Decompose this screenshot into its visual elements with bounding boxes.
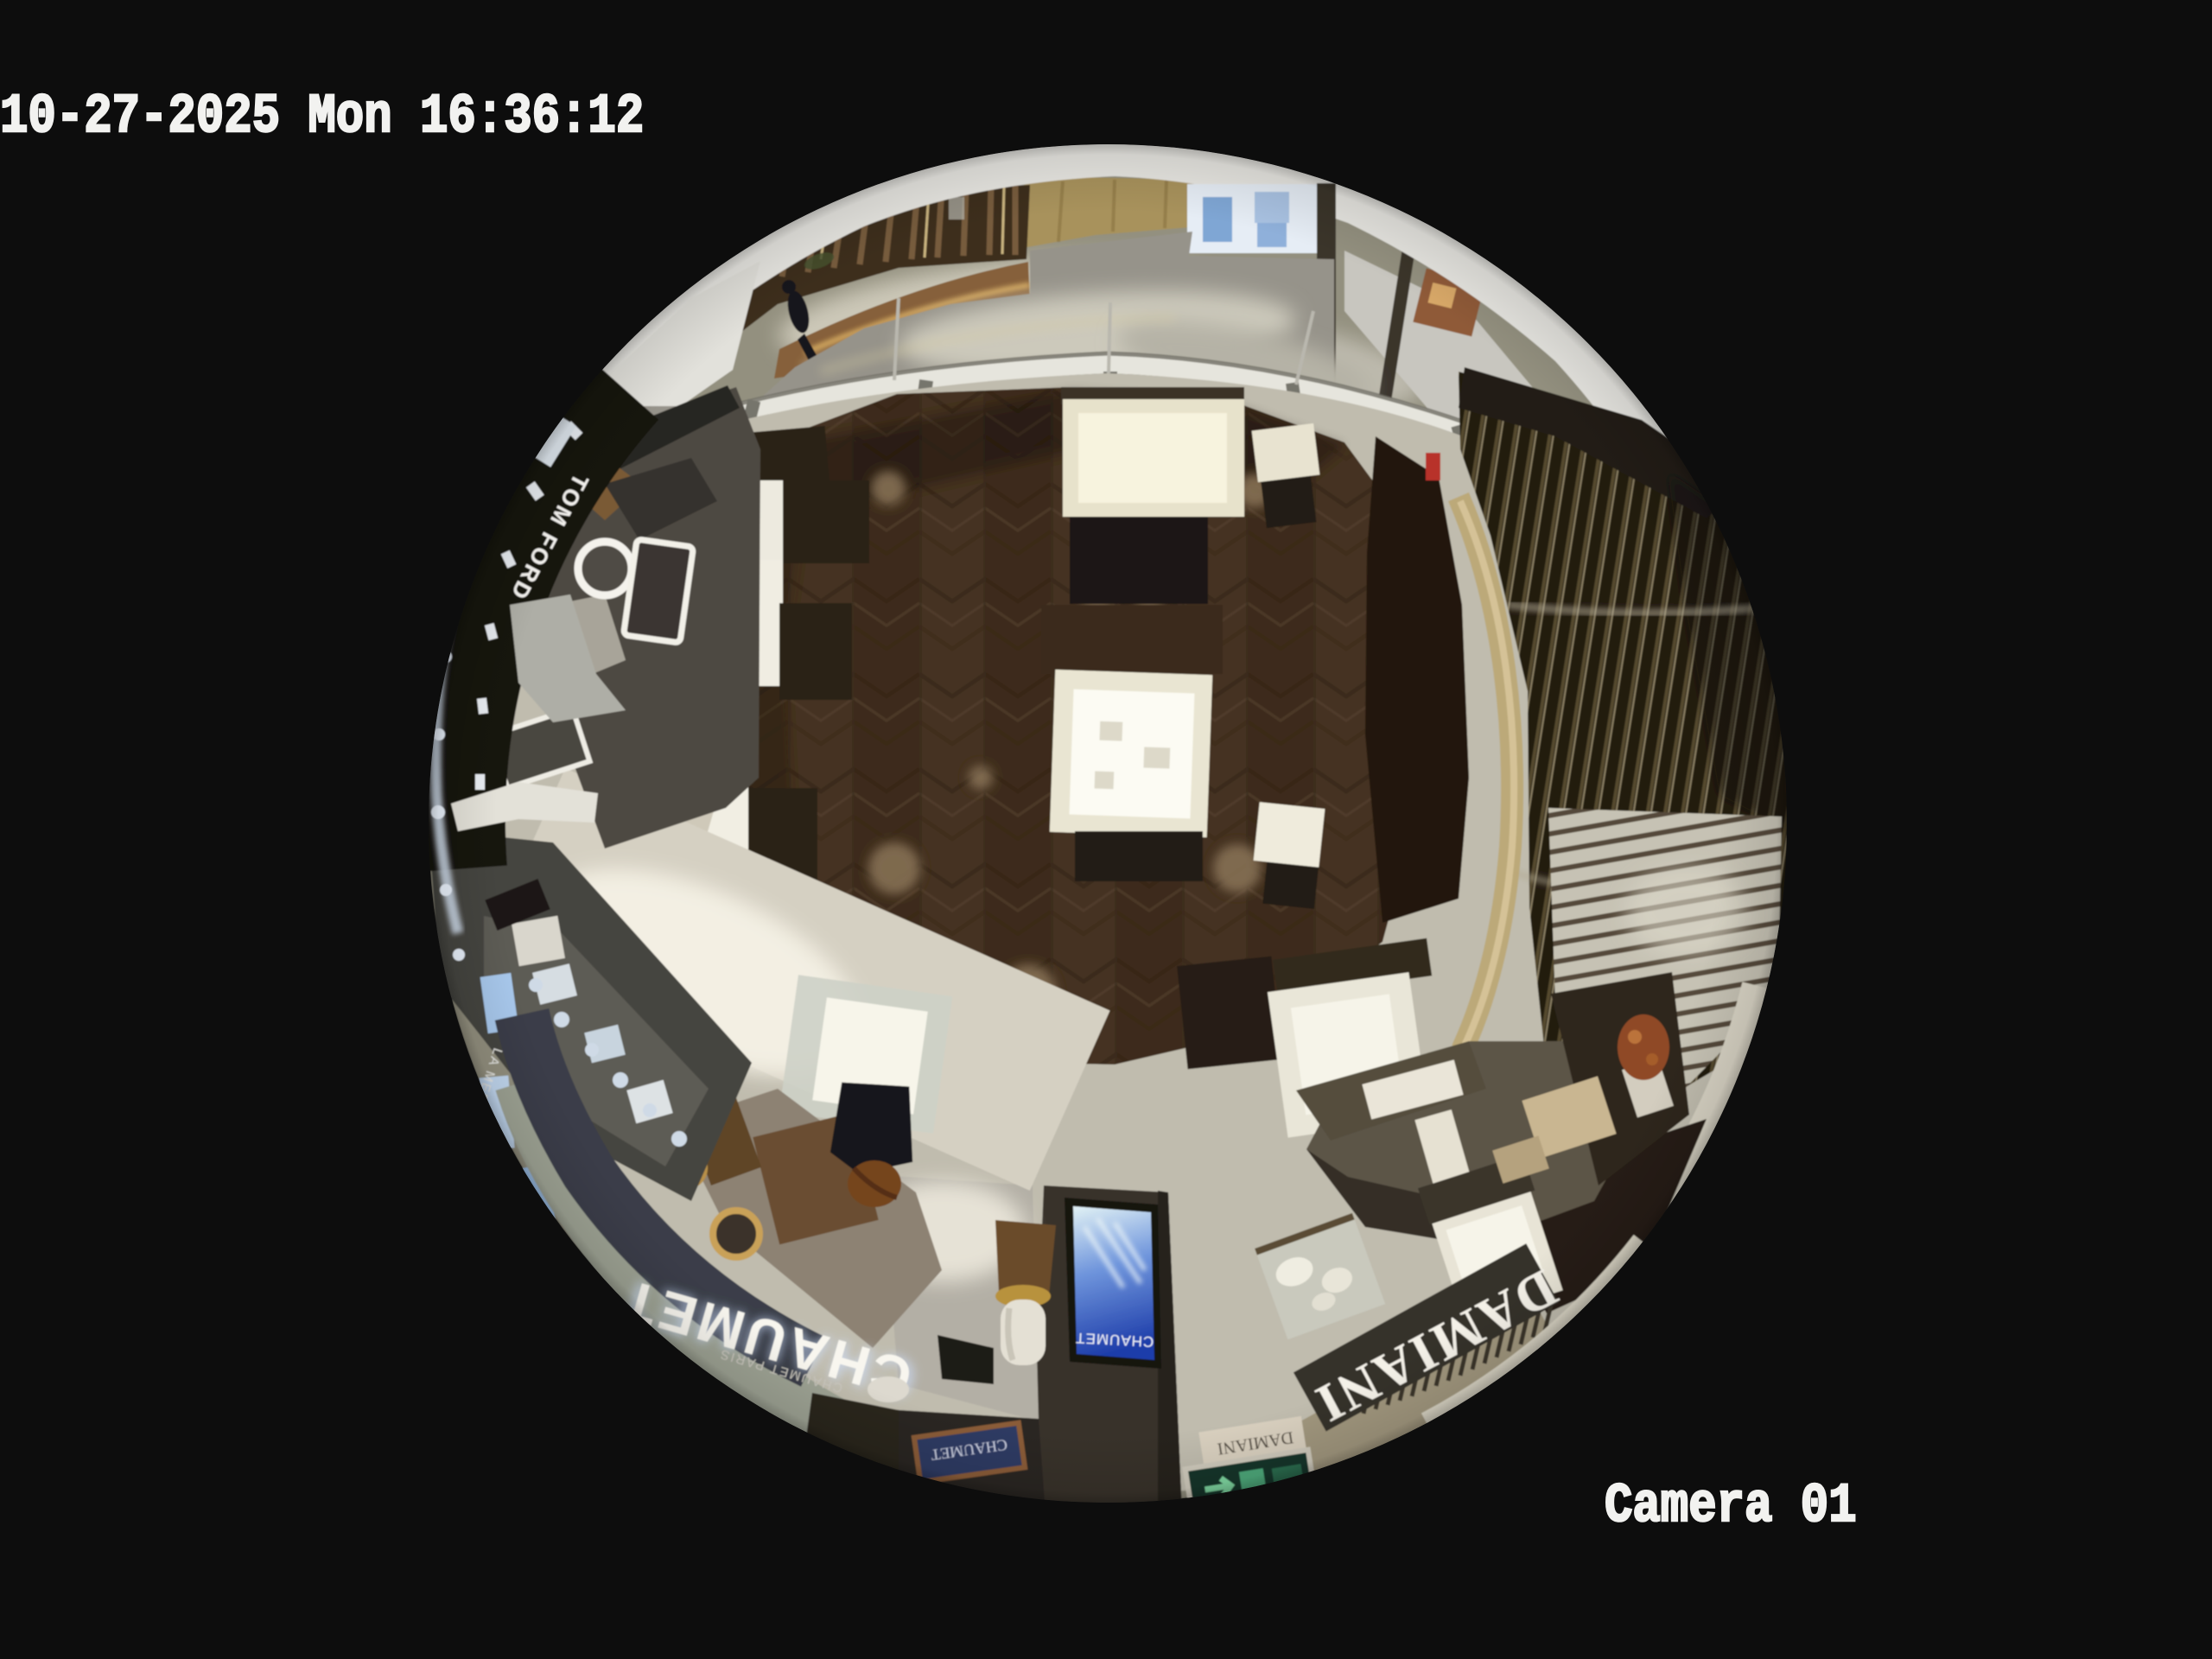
svg-text:Camera 01: Camera 01 [1605, 1475, 1857, 1538]
svg-text:10-27-2025 Mon 16:36:12: 10-27-2025 Mon 16:36:12 [0, 86, 644, 149]
